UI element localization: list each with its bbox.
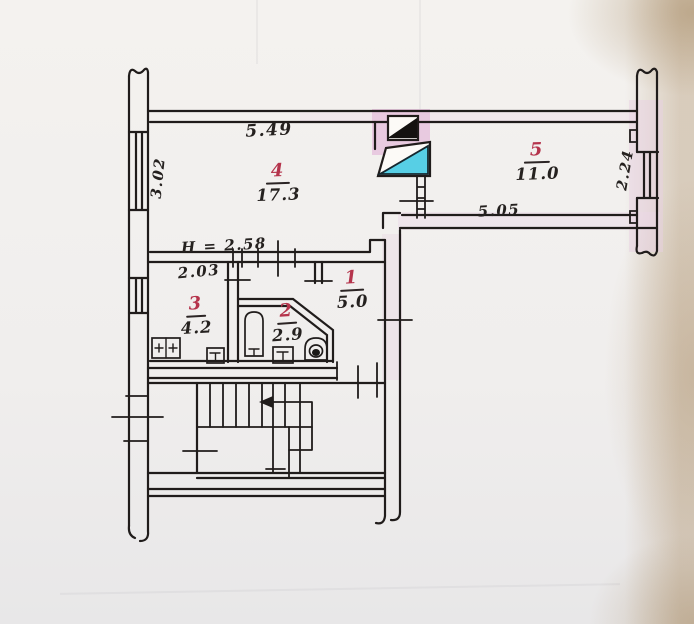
room2-label: 2 2.9 xyxy=(270,301,305,345)
dim-ceiling-height: H = 2.58 xyxy=(181,236,267,255)
room3-area: 4.2 xyxy=(180,319,213,337)
room4-number: 4 xyxy=(271,162,285,180)
room3-number: 3 xyxy=(188,295,202,314)
room1-area: 5.0 xyxy=(336,293,369,311)
room2-area: 2.9 xyxy=(271,326,304,345)
scanned-floor-plan-page: 5.49 3.02 H = 2.58 2.03 5.05 2.24 4 17.3… xyxy=(0,0,694,624)
room5-label: 5 11.0 xyxy=(514,140,560,183)
bathtub xyxy=(245,312,263,356)
room1-number: 1 xyxy=(344,269,358,288)
room1-label: 1 5.0 xyxy=(335,268,369,311)
dim-room4-width: 5.49 xyxy=(245,121,293,140)
dim-room3-width: 2.03 xyxy=(177,263,221,282)
floor-plan-drawing xyxy=(0,0,694,624)
room3-label: 3 4.2 xyxy=(179,294,213,337)
room4-label: 4 17.3 xyxy=(255,161,301,204)
kitchen-stove xyxy=(152,338,180,358)
room5-number: 5 xyxy=(530,141,544,159)
room5-area: 11.0 xyxy=(515,165,560,183)
room2-number: 2 xyxy=(279,302,294,321)
dim-room5-width: 5.05 xyxy=(477,202,520,219)
pink-wall-highlights xyxy=(300,100,663,380)
toilet xyxy=(305,338,327,360)
room4-area: 17.3 xyxy=(256,186,301,204)
